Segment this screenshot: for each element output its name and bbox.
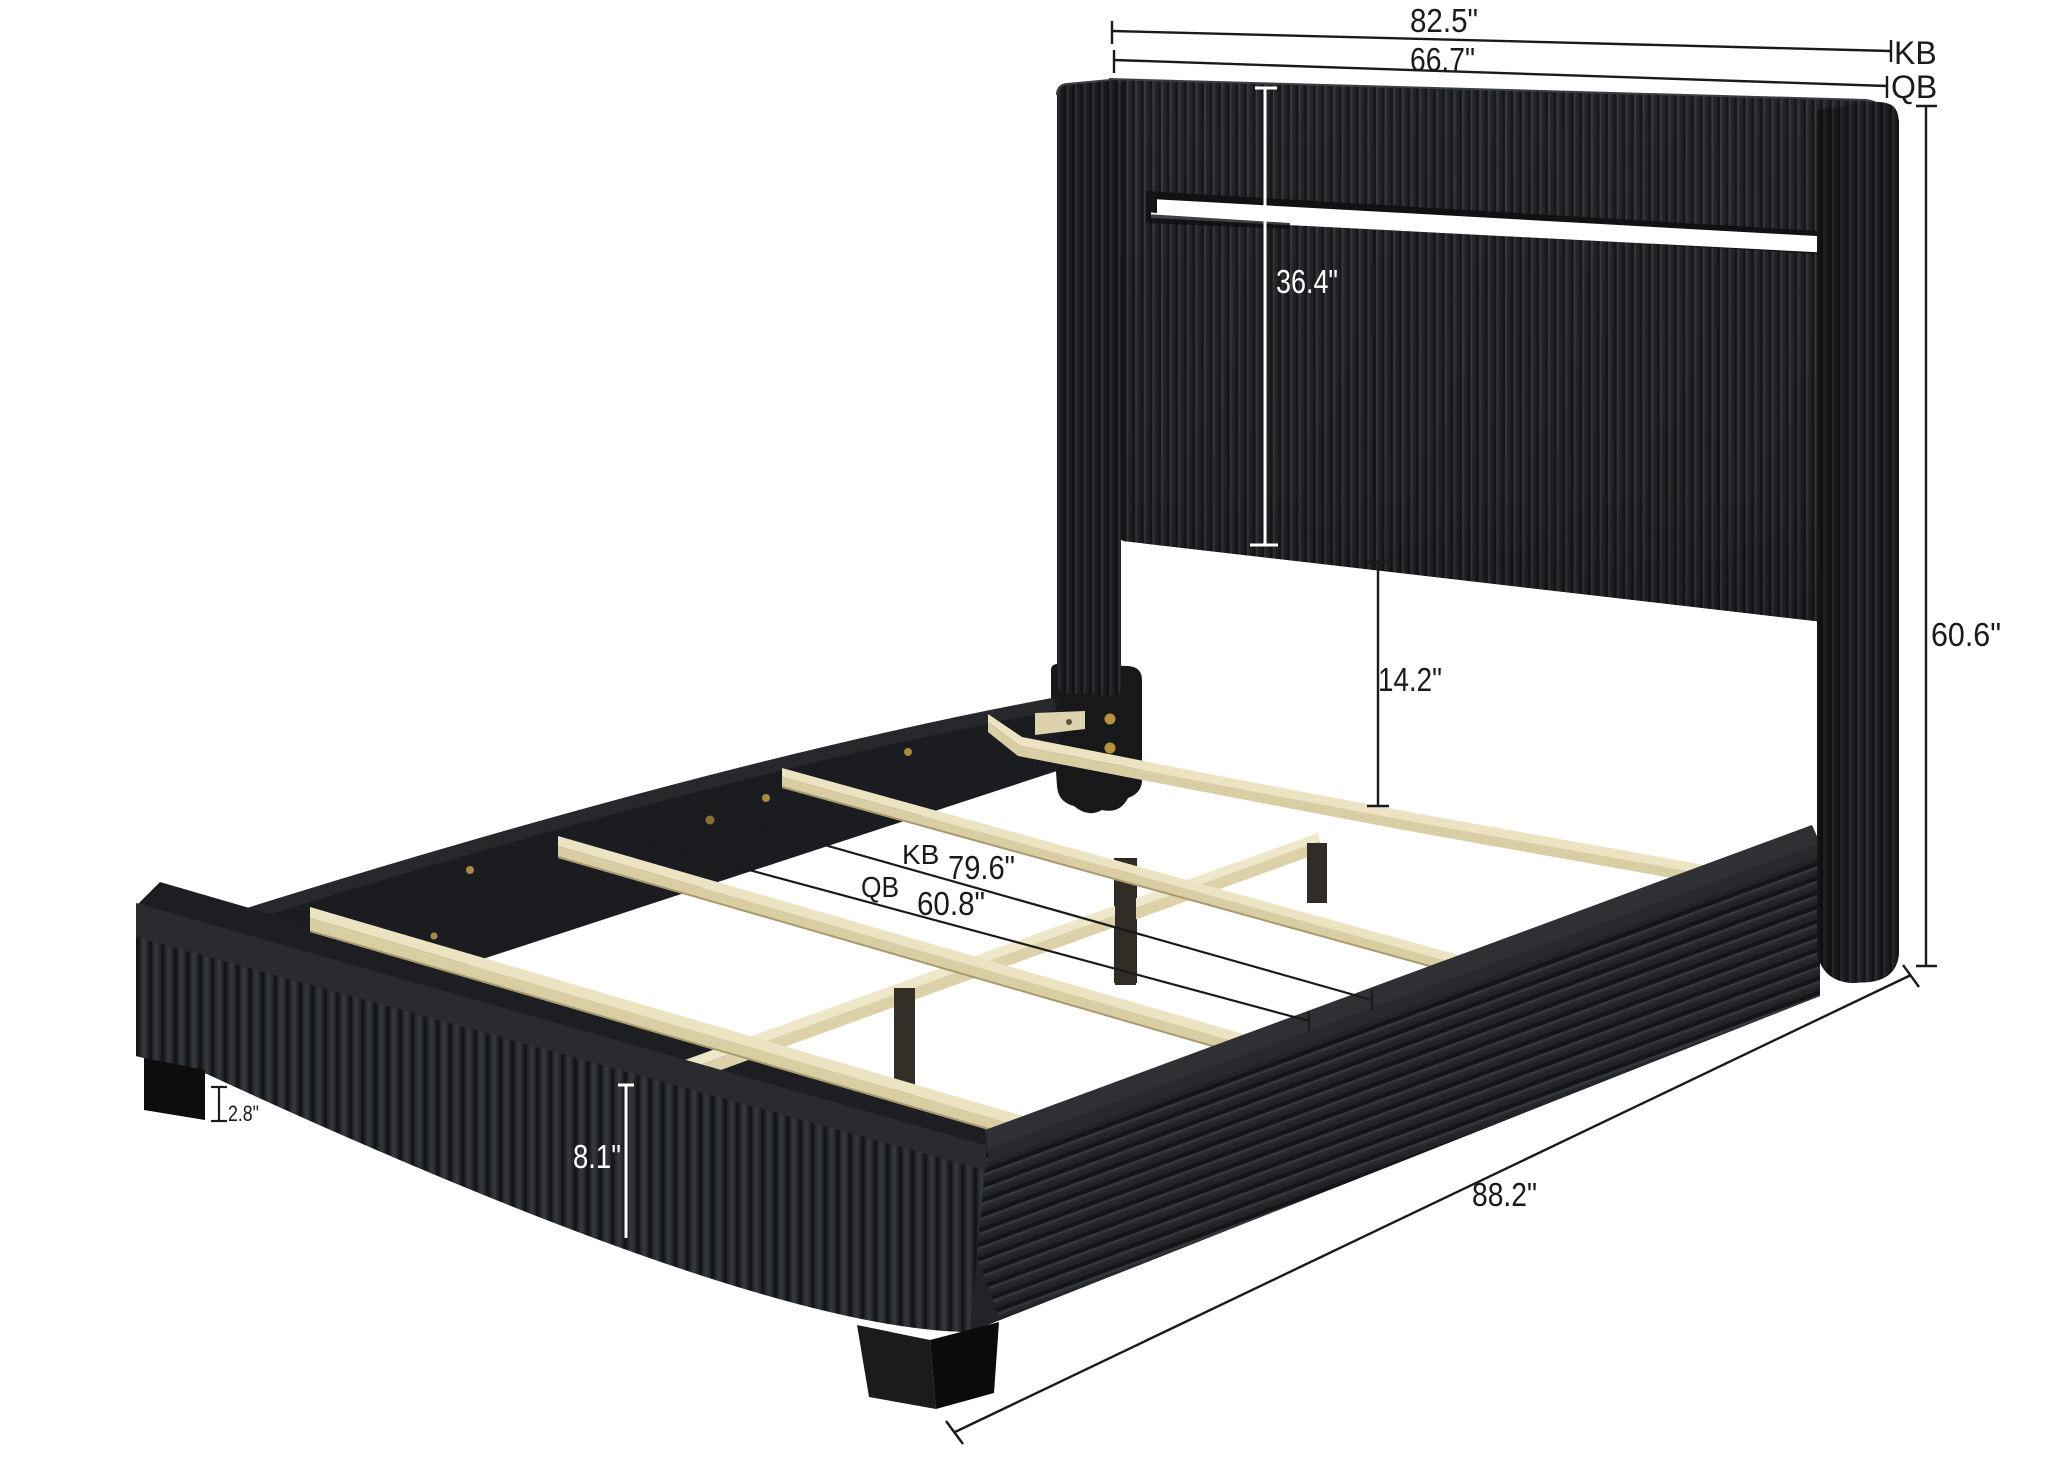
svg-text:66.7": 66.7" — [1410, 41, 1475, 78]
svg-text:88.2": 88.2" — [1472, 1176, 1537, 1213]
svg-text:60.8": 60.8" — [917, 885, 985, 922]
svg-text:KB: KB — [1894, 35, 1937, 71]
svg-text:2.8": 2.8" — [228, 1101, 259, 1126]
svg-text:79.6": 79.6" — [948, 849, 1015, 886]
svg-text:60.6": 60.6" — [1931, 616, 2001, 653]
svg-text:82.5": 82.5" — [1410, 2, 1478, 39]
svg-text:KB: KB — [902, 839, 939, 870]
svg-text:QB: QB — [1891, 69, 1937, 105]
svg-text:QB: QB — [861, 872, 899, 904]
svg-text:8.1": 8.1" — [573, 1138, 621, 1175]
svg-text:14.2": 14.2" — [1378, 661, 1442, 698]
svg-text:36.4": 36.4" — [1276, 263, 1338, 300]
